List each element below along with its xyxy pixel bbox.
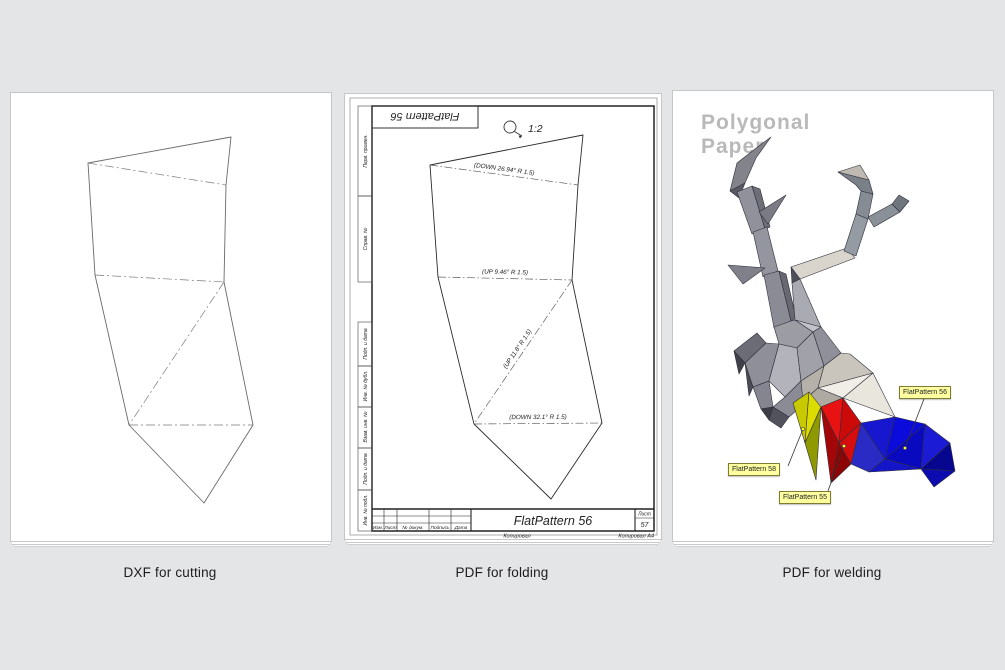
pattern-outline <box>88 137 253 503</box>
caption-welding: PDF for welding <box>672 565 992 580</box>
fold-lines <box>430 165 602 424</box>
fold-annotation-middle: (UP 9.46° R 1.5) <box>482 268 528 277</box>
side-label: Инв. № дубл. <box>363 371 369 402</box>
fold-annotations: (DOWN 26.94° R 1.5) (UP 9.46° R 1.5) (UP… <box>474 161 567 421</box>
deer-3d-render <box>673 91 993 541</box>
side-column-labels: Перв. примен. Справ. № Подп. и дата Инв.… <box>363 134 369 525</box>
gost-drawing-sheet: Перв. примен. Справ. № Подп. и дата Инв.… <box>345 94 661 539</box>
drawing-title: FlatPattern 56 <box>514 514 593 528</box>
sheet-number: 57 <box>641 522 650 529</box>
callout-flatpattern-56: FlatPattern 56 <box>899 386 951 399</box>
tb-col: Подпись <box>430 525 450 531</box>
dxf-flat-pattern-drawing <box>11 93 331 541</box>
scale-value: 1:2 <box>528 123 543 135</box>
dxf-cutting-page[interactable] <box>10 92 332 542</box>
pdf-folding-page[interactable]: Перв. примен. Справ. № Подп. и дата Инв.… <box>344 93 662 540</box>
tb-col: Лист <box>383 525 396 531</box>
magnifier-icon <box>504 121 516 133</box>
tb-col: Изм. <box>373 525 383 531</box>
fold-lines <box>88 163 253 425</box>
fold-annotation-bottom: (DOWN 32.1° R 1.5) <box>509 413 567 421</box>
callout-flatpattern-58: FlatPattern 58 <box>728 463 780 476</box>
side-label: Инв. № подл. <box>363 494 369 525</box>
callout-flatpattern-55: FlatPattern 55 <box>779 491 831 504</box>
deer-model <box>728 137 955 487</box>
side-label: Подп. и дата <box>363 453 369 485</box>
caption-cutting: DXF for cutting <box>10 565 330 580</box>
stamp-title: FlatPattern 56 <box>390 110 460 122</box>
fold-annotation-top: (DOWN 26.94° R 1.5) <box>474 161 535 177</box>
pattern-outline <box>430 135 602 499</box>
side-label: Взам. инв. № <box>363 411 369 443</box>
side-label: Перв. примен. <box>363 134 369 167</box>
side-label: Справ. № <box>363 227 369 250</box>
pdf-welding-page[interactable]: Polygonal Paper <box>672 90 994 542</box>
scale-callout: 1:2 <box>504 121 543 139</box>
footer-format: Копировал А4 <box>618 534 654 540</box>
caption-folding: PDF for folding <box>344 565 660 580</box>
sheet-label: Лист <box>637 512 651 518</box>
tb-col: № докум. <box>402 525 423 531</box>
composite-image: Перв. примен. Справ. № Подп. и дата Инв.… <box>0 0 1005 670</box>
fold-annotation-diagonal: (UP 11.8° R 1.5) <box>501 328 533 370</box>
title-block-headers: Изм. Лист № докум. Подпись Дата <box>373 525 468 531</box>
side-label: Подп. и дата <box>363 328 369 360</box>
tb-col: Дата <box>454 525 468 531</box>
footer-copied: Копировал <box>503 534 530 540</box>
outer-frame <box>350 98 657 535</box>
